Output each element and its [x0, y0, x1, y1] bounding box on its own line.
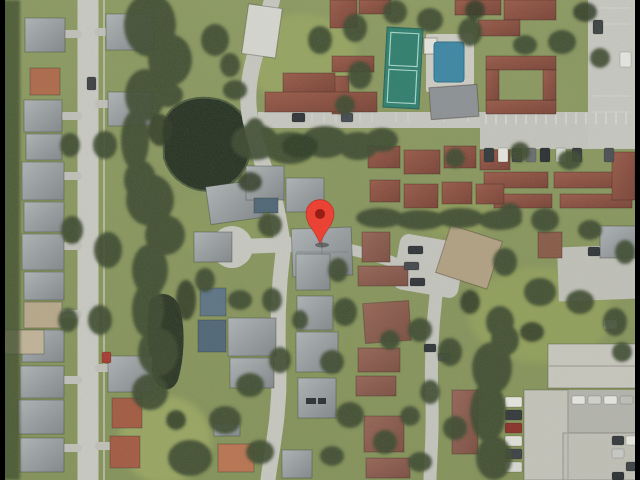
- map-viewport[interactable]: [0, 0, 640, 480]
- satellite-map[interactable]: [0, 0, 640, 480]
- letterbox-left: [0, 0, 5, 480]
- letterbox-right: [635, 0, 640, 480]
- pin-shadow: [315, 242, 329, 247]
- pin-inner-dot: [315, 209, 325, 219]
